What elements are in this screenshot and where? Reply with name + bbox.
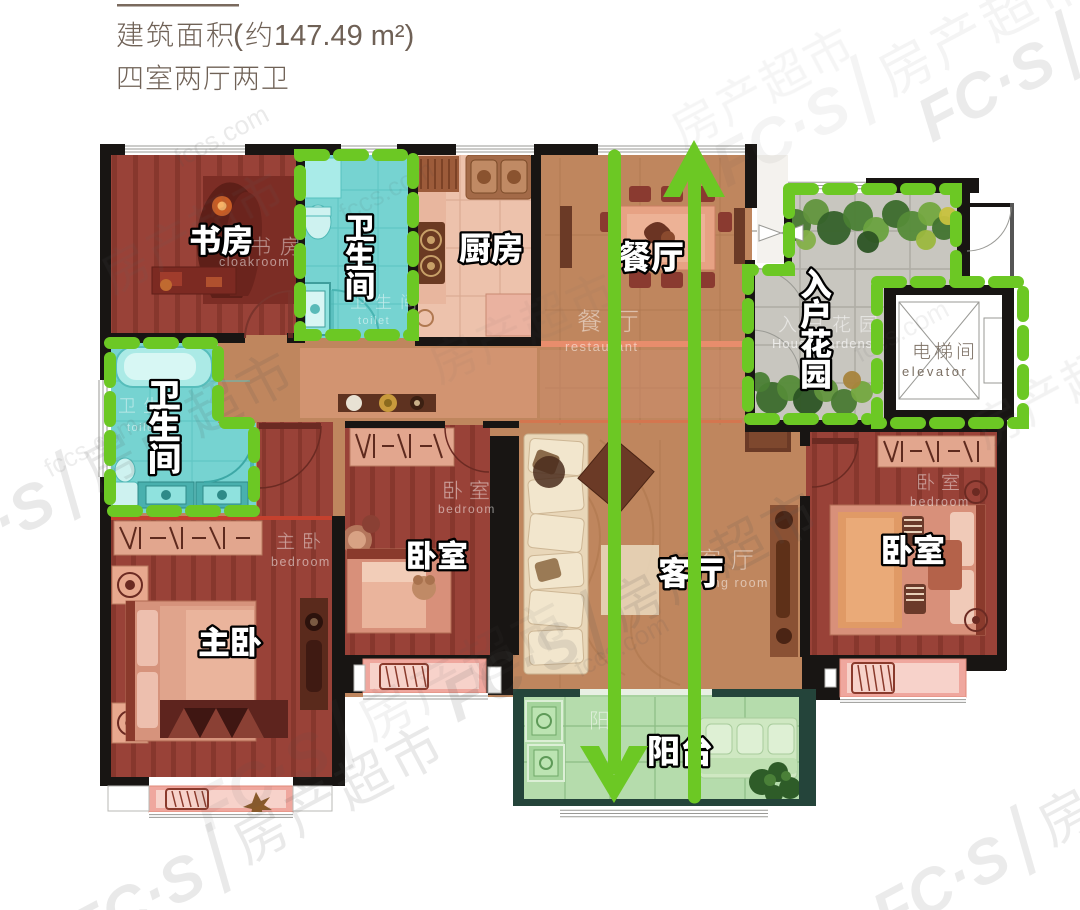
svg-text:147.49 m²): 147.49 m²)	[274, 20, 414, 52]
svg-text:cloakroom: cloakroom	[219, 255, 290, 269]
svg-text:(: (	[233, 19, 243, 52]
svg-text:bedroom: bedroom	[438, 502, 496, 516]
svg-text:bedroom: bedroom	[910, 495, 970, 509]
svg-text:toilet: toilet	[358, 315, 390, 327]
svg-text:elevator: elevator	[902, 364, 968, 379]
svg-text:restaurant: restaurant	[565, 339, 639, 354]
svg-text:bedroom: bedroom	[271, 555, 331, 569]
